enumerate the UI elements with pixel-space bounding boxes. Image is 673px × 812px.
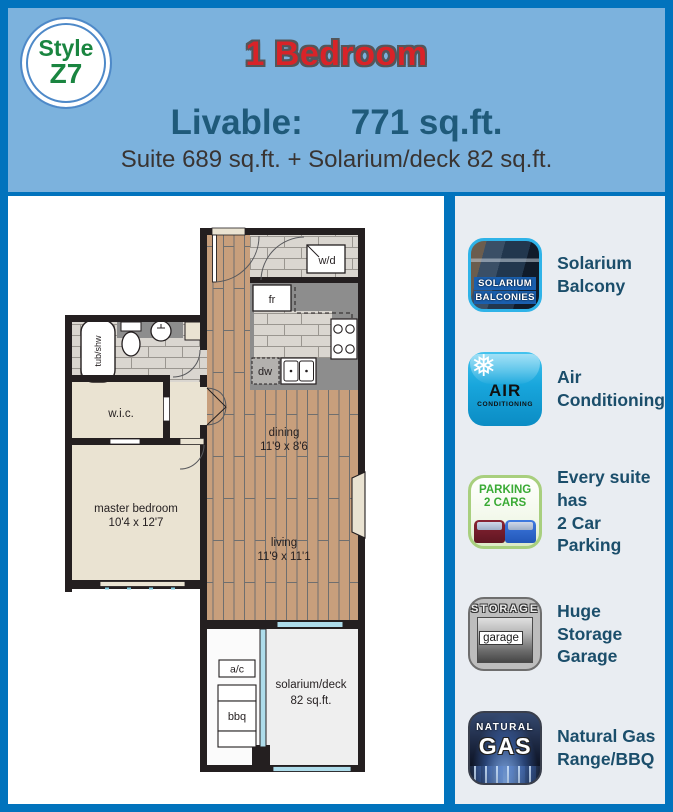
area-subtitle: Suite 689 sq.ft. + Solarium/deck 82 sq.f… <box>8 146 665 174</box>
amenity-label: Huge Storage Garage <box>557 600 665 668</box>
snowflake-icon: ❅ <box>471 352 496 384</box>
gas-icon-text-2: GAS <box>470 733 540 760</box>
garage-opening-graphic: garage <box>477 617 533 663</box>
entry-door-leaf <box>213 235 217 282</box>
amenity-natural-gas: NATURAL GAS Natural Gas Range/BBQ <box>468 711 665 785</box>
parking-2-cars-icon: PARKING 2 CARS <box>468 475 542 549</box>
cars-graphic <box>474 520 536 543</box>
amenity-air-conditioning: ❅ AIR CONDITIONING Air Conditioning <box>468 352 665 426</box>
dishwasher-label: dw <box>258 366 272 378</box>
master-label-1: master bedroom <box>94 503 178 515</box>
fridge-label: fr <box>269 294 276 306</box>
parking-icon-text-2: 2 CARS <box>471 497 539 510</box>
master-label-2: 10'4 x 12'7 <box>109 517 164 529</box>
master-window <box>100 582 185 587</box>
bbq-box-top <box>218 685 256 701</box>
natural-gas-icon: NATURAL GAS <box>468 711 542 785</box>
badge-style-label: Style <box>39 37 94 60</box>
dining-label-1: dining <box>269 427 300 439</box>
amenity-label: Solarium Balcony <box>557 252 632 298</box>
linen-niche <box>185 322 201 340</box>
storage-garage-icon: STORAGE garage <box>468 597 542 671</box>
solarium-label-1: solarium/deck <box>276 679 347 691</box>
toilet-tank <box>121 322 141 331</box>
living-window-niche <box>352 472 365 538</box>
solarium-side-glass <box>260 629 266 747</box>
dining-label-2: 11'9 x 8'6 <box>260 441 308 453</box>
amenity-storage: STORAGE garage Huge Storage Garage <box>468 597 665 671</box>
room-kitchen-floor <box>254 311 332 358</box>
solarium-icon-text-2: BALCONIES <box>474 291 536 304</box>
entry-door-sill <box>212 228 245 235</box>
solarium-bottom-glass <box>273 767 351 772</box>
solarium-balconies-icon: SOLARIUM BALCONIES <box>468 238 542 312</box>
vertical-divider <box>444 196 455 804</box>
livable-value: 771 sq.ft. <box>351 103 503 143</box>
ac-label: a/c <box>230 664 244 676</box>
amenity-label: Air Conditioning <box>557 366 665 412</box>
master-door-sill <box>180 439 204 445</box>
living-label-2: 11'9 x 11'1 <box>257 551 310 563</box>
storage-icon-text-2: garage <box>479 631 523 645</box>
style-badge: Style Z7 <box>20 17 112 109</box>
solarium-label-2: 82 sq.ft. <box>291 695 332 707</box>
blue-car-icon <box>505 520 536 543</box>
flyer-page: Style Z7 1 Bedroom Livable: 771 sq.ft. S… <box>0 0 673 812</box>
amenity-solarium: SOLARIUM BALCONIES Solarium Balcony <box>468 238 665 312</box>
amenity-parking: PARKING 2 CARS Every suite has 2 Car Par… <box>468 466 665 557</box>
wic-label: w.i.c. <box>107 408 134 420</box>
red-car-icon <box>474 520 505 543</box>
floor-plan-panel: w/d fr dw tub/shw <box>8 196 444 804</box>
storage-icon-text-1: STORAGE <box>470 603 540 615</box>
bbq-label: bbq <box>228 711 246 723</box>
livable-label: Livable: <box>171 103 303 143</box>
hall-door-sill <box>164 397 170 421</box>
amenity-label: Every suite has 2 Car Parking <box>557 466 665 557</box>
washer-dryer-label: w/d <box>317 255 335 267</box>
living-solarium-window <box>277 622 343 628</box>
gas-icon-text-1: NATURAL <box>470 722 540 733</box>
flames-graphic <box>470 766 540 783</box>
bathtub-label: tub/shw <box>93 335 103 367</box>
air-icon-text-1: AIR <box>468 382 542 401</box>
amenities-panel: SOLARIUM BALCONIES Solarium Balcony ❅ AI… <box>455 196 665 804</box>
solarium-icon-text-1: SOLARIUM <box>474 277 536 290</box>
bbq-box-bottom <box>218 731 256 747</box>
air-icon-text-2: CONDITIONING <box>468 401 542 408</box>
living-label-1: living <box>271 537 297 549</box>
air-conditioning-icon: ❅ AIR CONDITIONING <box>468 352 542 426</box>
livable-line: Livable: 771 sq.ft. <box>8 103 665 143</box>
parking-icon-text-1: PARKING <box>471 484 539 497</box>
toilet <box>122 332 140 356</box>
wic-door-sill <box>110 439 140 444</box>
main-area: w/d fr dw tub/shw <box>8 196 665 804</box>
amenity-label: Natural Gas Range/BBQ <box>557 725 655 771</box>
stove <box>331 319 357 359</box>
badge-style-code: Z7 <box>50 60 83 89</box>
floor-plan: w/d fr dw tub/shw <box>55 225 445 795</box>
header: Style Z7 1 Bedroom Livable: 771 sq.ft. S… <box>8 8 665 196</box>
